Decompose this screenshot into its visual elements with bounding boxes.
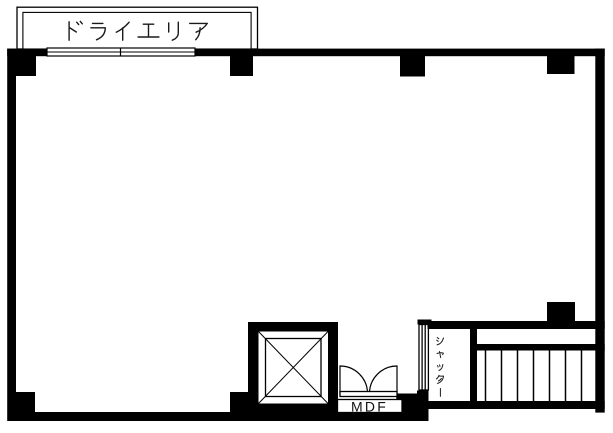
svg-text:MDF: MDF [351, 399, 388, 415]
